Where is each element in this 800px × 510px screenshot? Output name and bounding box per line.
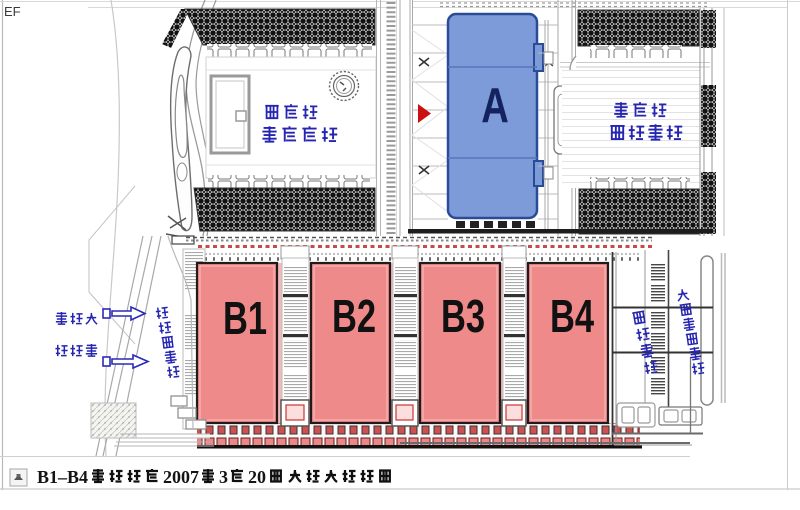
svg-text:3: 3 <box>219 467 228 487</box>
svg-text:20: 20 <box>248 467 266 487</box>
svg-text:2007: 2007 <box>163 467 199 487</box>
svg-text:B1: B1 <box>223 292 267 344</box>
svg-text:EF: EF <box>4 4 21 19</box>
svg-text:B2: B2 <box>332 290 376 342</box>
svg-text:B1–B4: B1–B4 <box>37 467 88 487</box>
svg-text:B3: B3 <box>441 290 485 342</box>
svg-text:A: A <box>481 79 509 134</box>
svg-text:B4: B4 <box>550 290 594 342</box>
